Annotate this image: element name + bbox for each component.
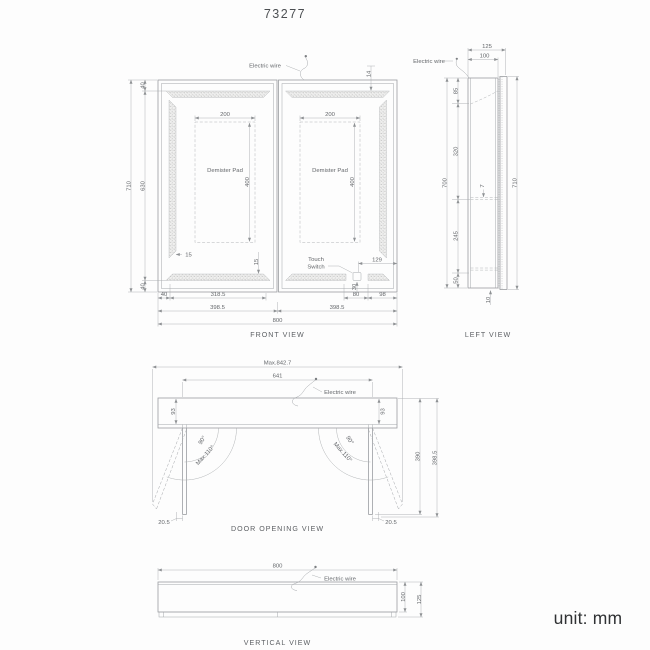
- electric-wire-door-view-tip: [315, 378, 317, 380]
- dim-door-width-398: 398.5: [433, 450, 439, 465]
- dim-door-width-right: 398.5: [330, 305, 345, 311]
- dim-inner-width: 641: [273, 374, 283, 380]
- electric-wire-door-view-label: Electric wire: [324, 390, 356, 396]
- dim-tip-offset-left: 20.5: [158, 520, 170, 526]
- dim-margin-top: 40: [141, 82, 147, 89]
- door-opening-view: 90° Max.110° 90° Max.110° 93 93 Max.842.…: [153, 361, 440, 534]
- angle-110-left: Max.110°: [195, 445, 216, 467]
- dim-height-body: 700: [443, 177, 449, 188]
- dim-shelf-thickness: 7: [480, 184, 486, 187]
- dim-seg-50: 50: [454, 277, 460, 284]
- dim-depth-body: 100: [480, 54, 491, 60]
- vertical-view-caption: VERTICAL VIEW: [244, 639, 311, 647]
- door-opening-view-caption: DOOR OPENING VIEW: [231, 525, 324, 533]
- left-door-inner-frame: [162, 84, 274, 289]
- drawing-title: 73277: [264, 7, 306, 21]
- electric-wire-vertical-view-tip: [314, 566, 316, 568]
- door-open-body: [158, 398, 397, 428]
- dim-pad-width-left: 200: [220, 112, 231, 118]
- touch-switch: [353, 273, 361, 281]
- led-strips-left-door: [166, 91, 270, 281]
- left-view: 7 125 100 Electric wire 85 320 245 50 70…: [413, 44, 519, 339]
- door-open-110-right: [369, 428, 403, 509]
- left-view-caption: LEFT VIEW: [465, 331, 511, 339]
- door-open-90-left: [183, 428, 187, 515]
- dim-pad-height-right: 400: [350, 176, 356, 187]
- dim-led-bottom-inset: 15: [254, 258, 260, 265]
- electric-wire-front-label: Electric wire: [249, 64, 281, 70]
- dim-bottom-offset: 10: [486, 296, 492, 303]
- electric-wire-door-view: [292, 380, 315, 406]
- dim-overall-width: 800: [273, 318, 284, 324]
- dim-80: 80: [353, 292, 360, 298]
- dim-led-top-offset: 14: [367, 70, 373, 77]
- led-strips-right-door: [286, 91, 390, 281]
- electric-wire-left-view-tip: [456, 58, 458, 60]
- dim-98: 98: [379, 292, 386, 298]
- dim-max-width: Max.842.7: [264, 361, 292, 367]
- dim-switch-offset: 129: [372, 258, 382, 264]
- touch-switch-label-2: Switch: [307, 265, 324, 271]
- left-view-body: [468, 78, 498, 288]
- angle-90-right: 90°: [344, 435, 354, 446]
- electric-wire-vertical-view: [291, 568, 315, 591]
- electric-wire-front: [300, 58, 307, 81]
- touch-switch-label-1: Touch: [308, 257, 324, 263]
- dim-seg-85: 85: [454, 87, 460, 94]
- dim-tip-offset-right: 20.5: [385, 520, 397, 526]
- door-open-90-right: [369, 428, 373, 515]
- dim-seg-320: 320: [454, 146, 460, 157]
- vertical-view: 800 Electric wire 100 125 VERTICAL VIEW: [158, 564, 423, 648]
- angle-90-left: 90°: [198, 435, 208, 446]
- dim-vertical-width: 800: [273, 564, 284, 570]
- dim-vertical-depth-overall: 125: [417, 594, 423, 605]
- technical-drawing-page: 73277 Demister Pad Demister Pad 200: [0, 0, 650, 650]
- electric-wire-left-view: [456, 60, 469, 78]
- dim-led-side-inset: 15: [185, 253, 192, 259]
- dim-pad-width-right: 200: [325, 112, 336, 118]
- dim-inner-height: 630: [141, 180, 147, 191]
- dim-bottom-40: 40: [161, 292, 168, 298]
- technical-drawing: 73277 Demister Pad Demister Pad 200: [0, 0, 650, 650]
- demister-pad-left-label: Demister Pad: [207, 168, 243, 174]
- front-view: Demister Pad Demister Pad 200 200 400 40…: [127, 55, 398, 339]
- left-view-diagonal: [471, 91, 498, 104]
- dim-depth-93-right: 93: [381, 408, 387, 415]
- demister-pad-right-label: Demister Pad: [312, 168, 348, 174]
- dim-seg-245: 245: [454, 230, 460, 241]
- dim-door-height-390: 390: [416, 451, 422, 462]
- electric-wire-vertical-view-label: Electric wire: [324, 577, 356, 583]
- dim-overall-height: 710: [127, 180, 133, 191]
- dim-door-width-left: 398.5: [210, 305, 225, 311]
- left-view-door: [500, 77, 507, 290]
- dim-margin-bottom: 40: [141, 283, 147, 290]
- dim-depth-overall: 125: [482, 44, 493, 50]
- dim-pad-height-left: 400: [245, 176, 251, 187]
- touch-switch-leader: [328, 266, 353, 273]
- electric-wire-front-tip: [305, 55, 307, 57]
- front-view-caption: FRONT VIEW: [250, 331, 304, 339]
- electric-wire-left-view-label: Electric wire: [413, 59, 445, 65]
- dim-vertical-depth-body: 100: [401, 591, 407, 602]
- vertical-body: [158, 582, 397, 612]
- dim-switch-height: 30: [352, 283, 358, 290]
- swing-arc-90-right: [337, 428, 371, 462]
- unit-note: unit: mm: [554, 608, 623, 628]
- door-open-110-left: [153, 428, 187, 509]
- dim-318-5: 318.5: [211, 292, 226, 298]
- dim-depth-93-left: 93: [171, 408, 177, 415]
- dim-height-door: 710: [513, 177, 519, 188]
